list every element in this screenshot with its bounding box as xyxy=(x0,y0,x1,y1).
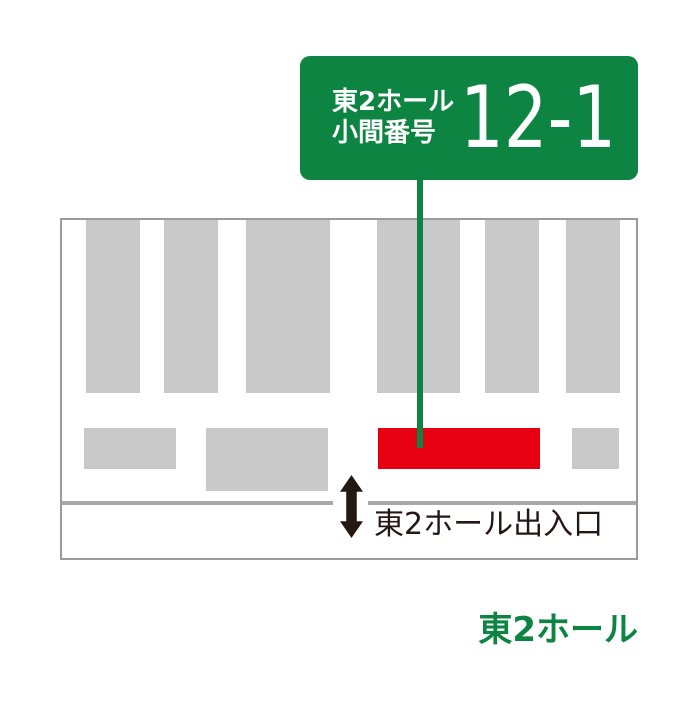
highlighted-booth xyxy=(378,428,540,469)
wall-line-right xyxy=(368,501,636,505)
booth-callout: 東2ホール 小間番号 12-1 xyxy=(300,56,638,180)
booth-number: 12-1 xyxy=(460,75,616,161)
callout-hall-label: 東2ホール xyxy=(332,87,454,118)
booth xyxy=(485,220,539,393)
hall-name-label: 東2ホール xyxy=(478,610,638,650)
wall-line-left xyxy=(62,501,333,505)
callout-connector-line xyxy=(417,180,423,448)
callout-labels: 東2ホール 小間番号 xyxy=(332,87,454,149)
entrance-arrow-icon xyxy=(340,475,363,538)
booth xyxy=(246,220,330,393)
entrance-label: 東2ホール出入口 xyxy=(374,509,603,541)
booth xyxy=(572,428,619,469)
booth xyxy=(206,428,328,491)
booth xyxy=(84,428,176,469)
booth xyxy=(86,220,140,393)
floor-plan: 東2ホール出入口 xyxy=(60,218,638,560)
callout-booth-type-label: 小間番号 xyxy=(332,118,454,149)
booth xyxy=(566,220,620,393)
booth-location-map: 東2ホール 小間番号 12-1 東2ホール出入口 東2ホール xyxy=(0,0,698,714)
booth xyxy=(164,220,218,393)
